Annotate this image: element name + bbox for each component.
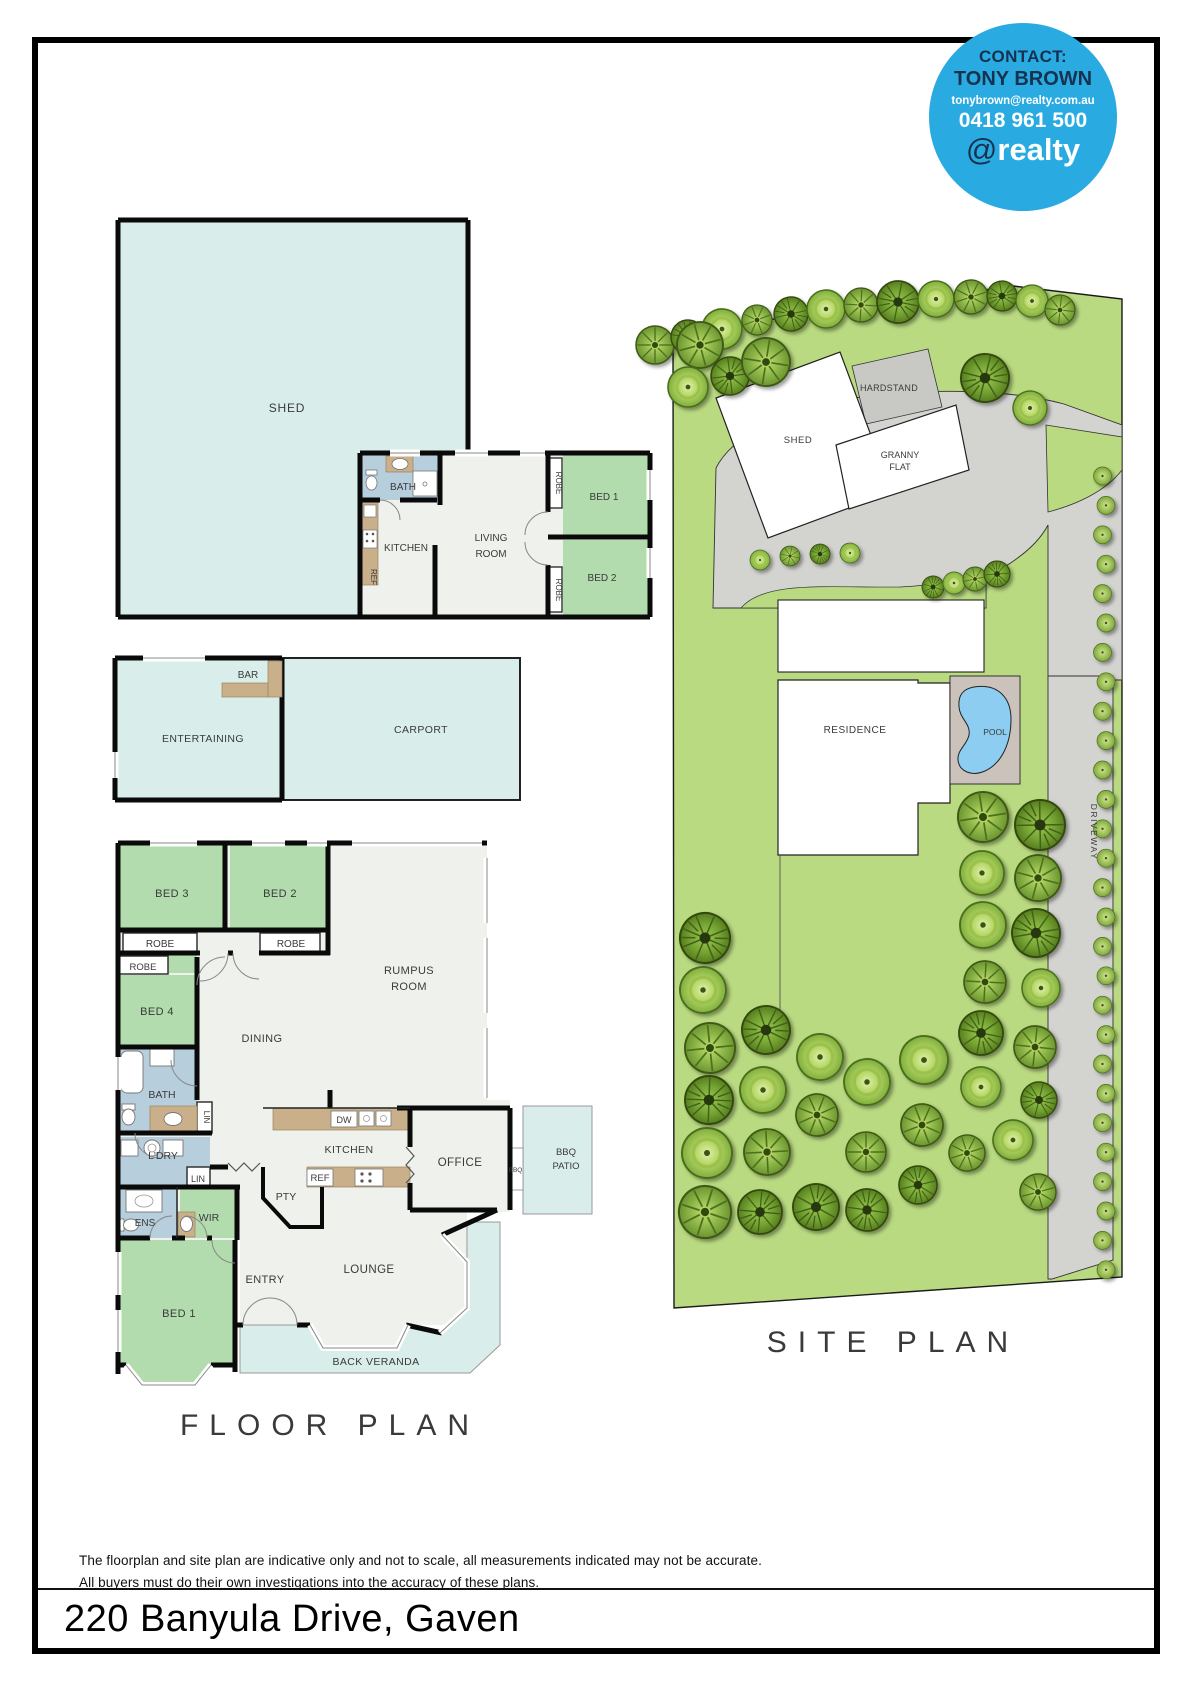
bush-icon bbox=[1094, 937, 1112, 955]
address-bar: 220 Banyula Drive, Gaven bbox=[38, 1590, 1154, 1648]
bush-icon bbox=[1097, 908, 1115, 926]
site-plan: SHED HARDSTAND GRANNY FLAT RESIDENCE POO… bbox=[636, 274, 1122, 1359]
entertaining-label: ENTERTAINING bbox=[162, 733, 244, 745]
bush-icon bbox=[1094, 761, 1112, 779]
ldry-label: L'DRY bbox=[148, 1150, 178, 1162]
rumpus-label-1: RUMPUS bbox=[384, 965, 434, 977]
flat-ref-label: REF bbox=[369, 569, 378, 585]
realty-logo-text: realty bbox=[997, 132, 1080, 167]
bath-label: BATH bbox=[148, 1089, 175, 1101]
bush-icon bbox=[1097, 967, 1115, 985]
dining-label: DINING bbox=[242, 1033, 283, 1045]
robe-bed3-label: ROBE bbox=[146, 939, 175, 950]
robe-bed4-label: ROBE bbox=[130, 962, 157, 973]
main-floor-plan: BED 3 BED 2 ROBE ROBE ROBE BED 4 DINING … bbox=[118, 843, 592, 1442]
bush-icon bbox=[1094, 467, 1112, 485]
site-residence-wing bbox=[778, 600, 984, 672]
bush-icon bbox=[1097, 732, 1115, 750]
bed1-label: BED 1 bbox=[162, 1308, 196, 1320]
site-driveway-label: DRIVEWAY bbox=[1089, 804, 1099, 860]
tree-icon bbox=[1021, 968, 1060, 1007]
ens-label: ENS bbox=[135, 1218, 156, 1229]
disclaimer: The floorplan and site plan are indicati… bbox=[79, 1550, 762, 1593]
site-granny-label-2: FLAT bbox=[889, 462, 911, 472]
bush-icon bbox=[1097, 673, 1115, 691]
site-pool-label: POOL bbox=[983, 727, 1007, 737]
bed3-label: BED 3 bbox=[155, 888, 189, 900]
bush-icon bbox=[1097, 614, 1115, 632]
flat-bath-label: BATH bbox=[390, 482, 416, 493]
bbq-patio-label-1: BBQ bbox=[556, 1147, 576, 1158]
wir-label: WIR bbox=[199, 1212, 220, 1224]
bbq-label: BBQ bbox=[509, 1167, 523, 1174]
flat-living-label-2: ROOM bbox=[475, 549, 506, 560]
bush-icon bbox=[1094, 879, 1112, 897]
tree-icon bbox=[668, 367, 709, 408]
bush-icon bbox=[1097, 555, 1115, 573]
bed2-label: BED 2 bbox=[263, 888, 297, 900]
lounge-label: LOUNGE bbox=[344, 1264, 395, 1276]
back-veranda-label: BACK VERANDA bbox=[332, 1356, 419, 1368]
lin2-label: LIN bbox=[191, 1174, 205, 1184]
contact-name: TONY BROWN bbox=[929, 68, 1117, 91]
bbq-patio-label-2: PATIO bbox=[552, 1161, 579, 1172]
bush-icon bbox=[1094, 585, 1112, 603]
bush-icon bbox=[1094, 1055, 1112, 1073]
site-granny-label-1: GRANNY bbox=[881, 450, 920, 460]
pty-label: PTY bbox=[276, 1191, 296, 1203]
bush-icon bbox=[1094, 1114, 1112, 1132]
dw-label: DW bbox=[337, 1115, 352, 1125]
bbq-patio-area bbox=[523, 1106, 592, 1214]
bush-icon bbox=[1094, 1231, 1112, 1249]
bush-icon bbox=[1094, 702, 1112, 720]
contact-heading: CONTACT: bbox=[929, 47, 1117, 67]
tree-icon bbox=[636, 326, 674, 364]
office-label: OFFICE bbox=[438, 1157, 483, 1169]
bush-icon bbox=[1094, 643, 1112, 661]
site-residence-label: RESIDENCE bbox=[824, 725, 887, 736]
site-shed-label: SHED bbox=[784, 435, 812, 446]
flat-kitchen-label: KITCHEN bbox=[384, 543, 428, 554]
bar-label: BAR bbox=[238, 670, 259, 681]
brochure-page: SHED HARDSTAND GRANNY FLAT RESIDENCE POO… bbox=[0, 0, 1200, 1697]
robe-bed2-label: ROBE bbox=[277, 939, 306, 950]
bush-icon bbox=[1097, 1084, 1115, 1102]
flat-bed1-label: BED 1 bbox=[590, 492, 619, 503]
flat-robe-bottom-label: ROBE bbox=[554, 579, 563, 602]
bush-icon bbox=[1097, 1143, 1115, 1161]
plans-drawing: SHED HARDSTAND GRANNY FLAT RESIDENCE POO… bbox=[0, 0, 1200, 1697]
bush-icon bbox=[1094, 996, 1112, 1014]
granny-flat-floor-plan: SHED BATH KITCHEN REF LIVING ROOM ROBE B… bbox=[118, 220, 650, 617]
site-hardstand-label: HARDSTAND bbox=[860, 383, 918, 393]
bush-icon bbox=[1094, 526, 1112, 544]
contact-phone[interactable]: 0418 961 500 bbox=[929, 109, 1117, 133]
contact-badge: CONTACT: TONY BROWN tonybrown@realty.com… bbox=[929, 23, 1117, 211]
kitchen-label: KITCHEN bbox=[325, 1144, 374, 1156]
bush-icon bbox=[1097, 496, 1115, 514]
contact-email[interactable]: tonybrown@realty.com.au bbox=[929, 95, 1117, 107]
entry-label: ENTRY bbox=[245, 1274, 284, 1286]
bush-icon bbox=[1097, 1202, 1115, 1220]
lin1-label: LIN bbox=[202, 1111, 211, 1124]
tree-icon bbox=[684, 1075, 734, 1125]
ref-label: REF bbox=[311, 1173, 330, 1184]
property-address: 220 Banyula Drive, Gaven bbox=[38, 1598, 520, 1641]
flat-shed-label: SHED bbox=[269, 401, 306, 415]
floor-plan-title: FLOOR PLAN bbox=[180, 1409, 480, 1442]
realty-at-icon: @ bbox=[966, 132, 997, 167]
flat-robe-top-label: ROBE bbox=[554, 472, 563, 495]
bush-icon bbox=[1094, 1173, 1112, 1191]
disclaimer-line-1: The floorplan and site plan are indicati… bbox=[79, 1550, 762, 1572]
bed4-label: BED 4 bbox=[140, 1006, 174, 1018]
carport-label: CARPORT bbox=[394, 724, 448, 736]
flat-living-label-1: LIVING bbox=[475, 533, 508, 544]
bush-icon bbox=[1097, 1261, 1115, 1279]
realty-logo: @realty bbox=[929, 134, 1117, 165]
site-plan-title: SITE PLAN bbox=[767, 1326, 1019, 1359]
outbuilding-plan: BAR ENTERTAINING CARPORT bbox=[115, 658, 520, 800]
flat-bed2-label: BED 2 bbox=[588, 573, 617, 584]
rumpus-label-2: ROOM bbox=[391, 981, 427, 993]
bush-icon bbox=[1097, 1026, 1115, 1044]
